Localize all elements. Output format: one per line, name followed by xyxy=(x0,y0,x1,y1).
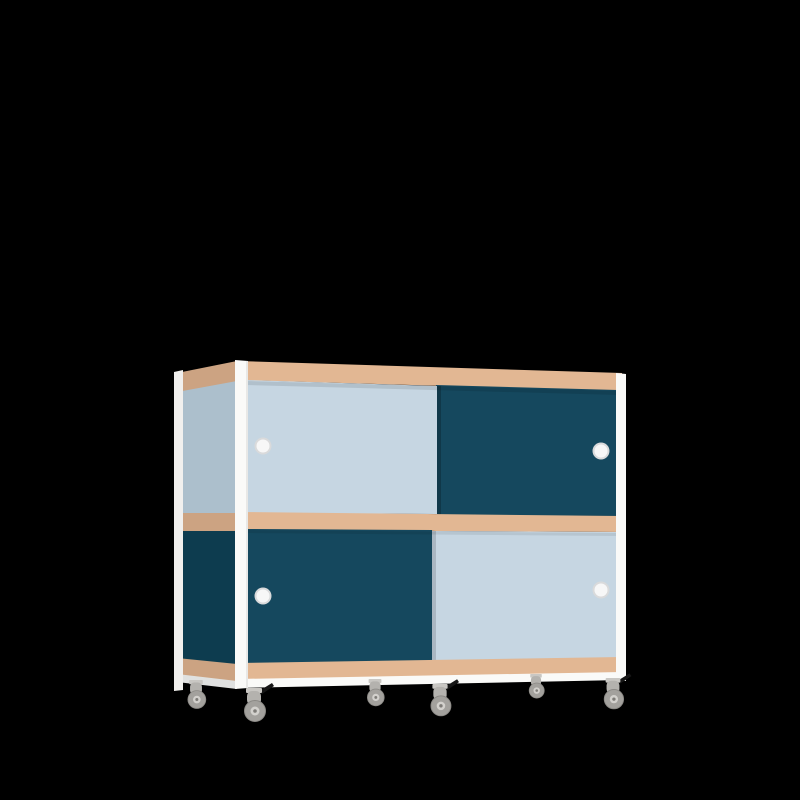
door-upper-right-teal xyxy=(436,385,618,516)
cabinet-front-face xyxy=(237,361,622,688)
handle-upper-right xyxy=(593,443,610,460)
caster-front-left xyxy=(245,683,275,722)
right-frame-post xyxy=(616,373,626,681)
cabinet-render xyxy=(0,0,800,800)
caster-front-right xyxy=(604,673,631,708)
corner-post-edge-line xyxy=(246,361,248,688)
render-canvas xyxy=(0,0,800,800)
handle-upper-left xyxy=(255,438,272,455)
handle-lower-right xyxy=(593,582,610,599)
door-upper-left-light xyxy=(246,380,437,514)
side-shading xyxy=(177,361,237,689)
handle-lower-left xyxy=(255,588,272,605)
lower-door-seam-shadow xyxy=(432,530,436,661)
door-lower-right-light xyxy=(431,531,618,661)
cabinet-left-side xyxy=(177,361,237,689)
door-lower-left-teal xyxy=(246,529,432,665)
caster-front-middle xyxy=(431,679,459,716)
upper-door-seam-shadow xyxy=(437,386,441,515)
left-frame-strip xyxy=(174,370,183,691)
